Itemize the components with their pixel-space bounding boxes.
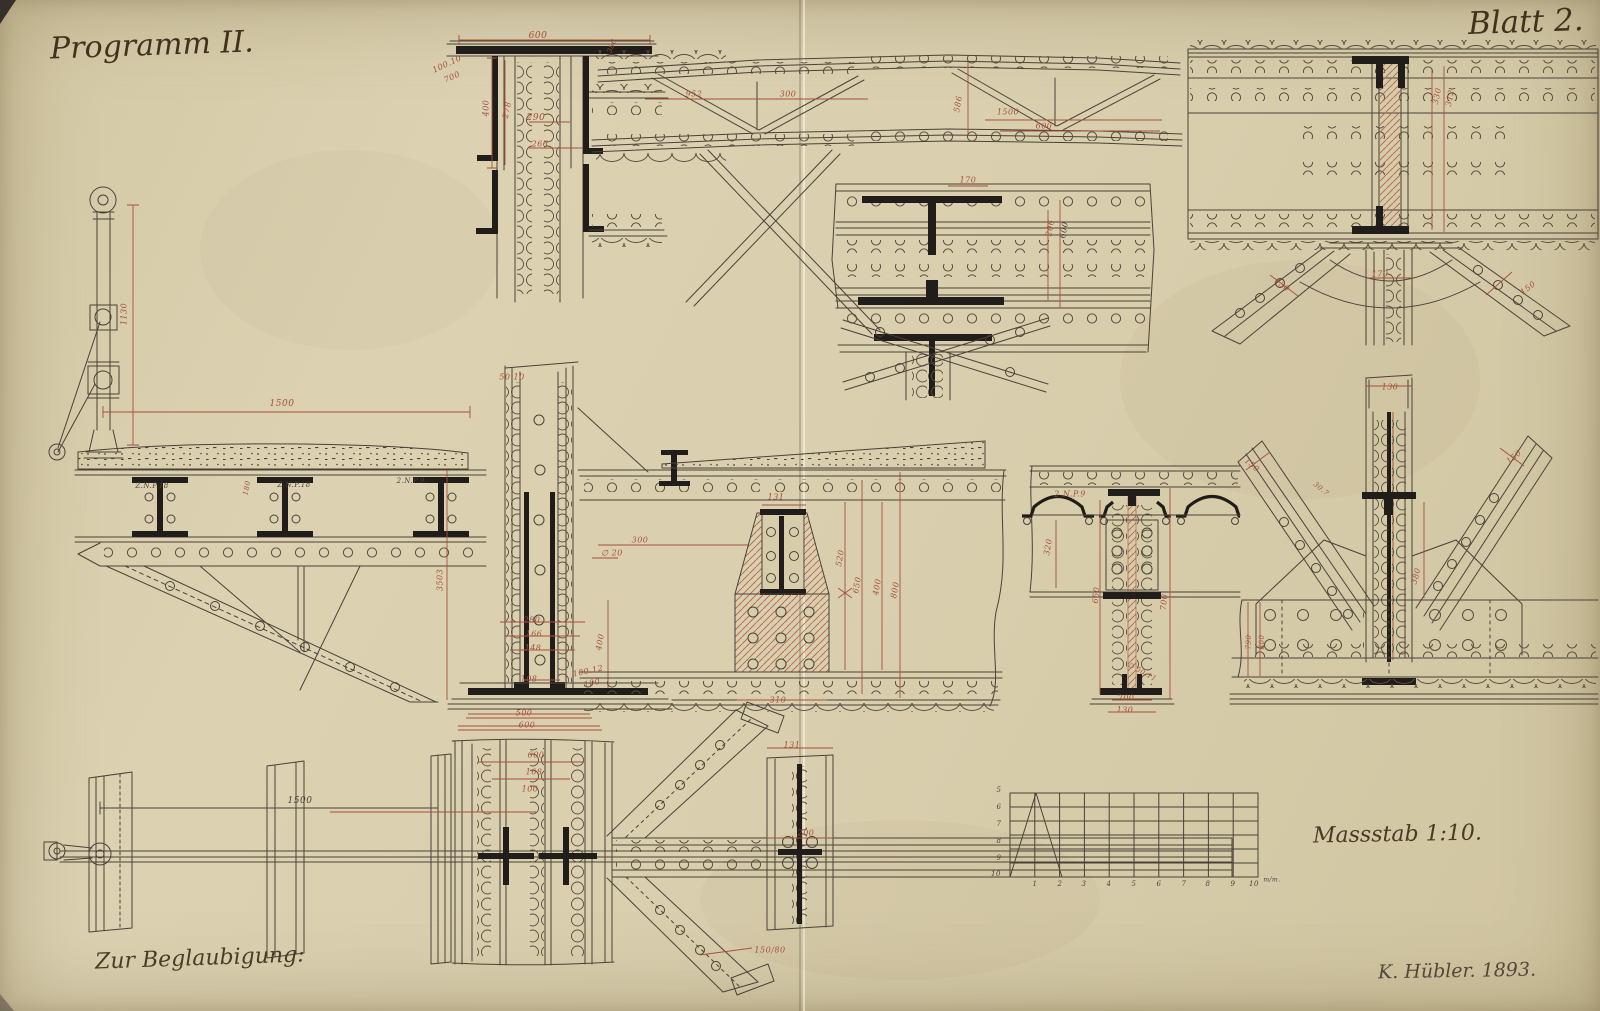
dimension-label: 1500 — [288, 796, 313, 806]
view-deck-section — [1022, 466, 1240, 712]
dimension-label: 7 — [1182, 880, 1187, 888]
dimension-label: 6 — [997, 803, 1002, 811]
dimension-label: 8 — [1206, 880, 1211, 888]
dimension-label: 600 — [529, 31, 548, 41]
dimension-label: 10 — [991, 870, 1001, 878]
dimension-label: 200 — [1118, 694, 1135, 703]
dimension-label: 170 — [1372, 270, 1389, 279]
dimension-label: 2.N.P.9 — [1054, 490, 1086, 499]
sheet-number: Blatt 2. — [1467, 2, 1584, 42]
dimension-label: 700 — [1159, 593, 1169, 611]
dimension-label: 170 — [960, 176, 977, 185]
dimension-label: 952 — [686, 90, 703, 99]
dimension-label: 200 — [798, 829, 815, 838]
dimension-label: 10 — [1249, 880, 1259, 888]
dimension-label: 150/80 — [754, 946, 785, 955]
dimension-label: 650 — [1091, 586, 1101, 604]
dimension-label: 3503 — [436, 569, 445, 591]
dimension-label: ∅ 20 — [601, 549, 623, 558]
dimension-label: 1500 — [270, 399, 295, 409]
dimension-label: 130 — [1382, 383, 1399, 392]
dimension-label: 168 — [526, 768, 543, 777]
dimension-label: 3 — [1082, 880, 1087, 888]
dimension-label: 600 — [519, 721, 536, 730]
dimension-label: m/m. — [1263, 877, 1280, 884]
dimension-label: 166 — [526, 630, 543, 639]
view-column-base-detail — [447, 362, 762, 726]
dimension-label: 2.N.P.9. — [397, 477, 428, 485]
dimension-label: 1130 — [120, 303, 129, 325]
dimension-label: 500 — [516, 709, 533, 718]
dimension-label: 148 — [525, 644, 542, 653]
dimension-label: 266 — [532, 140, 549, 149]
technical-drawing — [0, 0, 1600, 1011]
view-girder-plan-center — [832, 184, 1154, 400]
dimension-label: 108 — [521, 675, 538, 684]
dimension-label: 600 — [1258, 635, 1266, 650]
dimension-label: 131 — [768, 493, 785, 502]
dimension-label: 50.10 — [499, 373, 524, 382]
dimension-label: 9 — [1231, 880, 1236, 888]
scale-label: Massstab 1:10. — [1313, 821, 1482, 849]
dimension-label: 7 — [997, 820, 1002, 828]
dimension-label: 310 — [770, 696, 787, 705]
signature: K. Hübler. 1893. — [1378, 959, 1536, 984]
dimension-label: 300 — [780, 90, 797, 99]
dimension-label: 8 — [997, 837, 1002, 845]
view-truss-elevation — [592, 50, 1182, 334]
dimension-label: 5 — [997, 786, 1002, 794]
drawing-title: Programm II. — [49, 24, 254, 66]
dimension-label: 1 — [1033, 880, 1038, 888]
dimension-label: Z.N.P.18 — [135, 482, 168, 490]
dimension-label: 790 — [1245, 635, 1253, 650]
dimension-label: 9 — [997, 854, 1002, 862]
dimension-label: 600 — [528, 751, 545, 760]
dimension-label: Z.N.P.18 — [277, 481, 310, 489]
dimension-label: 130 — [1117, 706, 1134, 715]
dimension-label: 1500 — [997, 108, 1019, 117]
dimension-label: 280 — [524, 616, 541, 625]
dimension-label: 290 — [527, 113, 546, 123]
drawing-sheet: Programm II. Blatt 2. Massstab 1:10. Zur… — [0, 0, 1600, 1011]
dimension-label: 2 — [1058, 880, 1063, 888]
dimension-label: 400 — [482, 100, 491, 117]
dimension-label: 300 — [632, 536, 649, 545]
dimension-label: 131 — [784, 741, 801, 750]
dimension-label: 600 — [1036, 122, 1053, 131]
dimension-label: 6 — [1157, 880, 1162, 888]
dimension-label: 5 — [1132, 880, 1137, 888]
dimension-label: 4 — [1107, 880, 1112, 888]
dimension-label: 100 — [522, 785, 539, 794]
